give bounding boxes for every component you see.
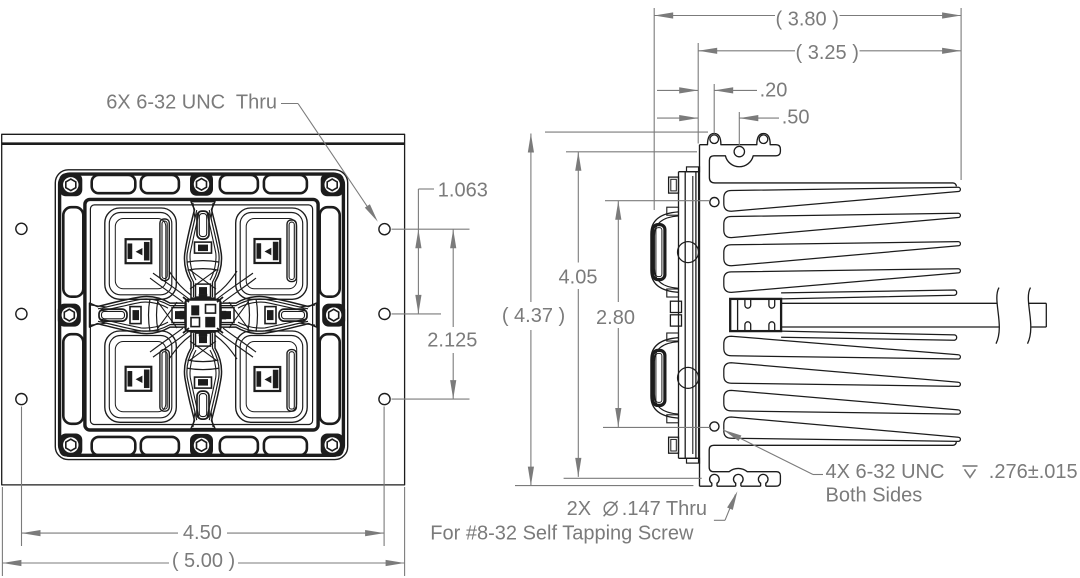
svg-text:6X 6-32 UNC Thru: 6X 6-32 UNC Thru (106, 91, 277, 113)
svg-text:( 4.37 ): ( 4.37 ) (502, 305, 565, 327)
svg-text:( 5.00 ): ( 5.00 ) (172, 550, 235, 572)
svg-text:( 3.80 ): ( 3.80 ) (776, 9, 839, 31)
svg-text:.20: .20 (760, 80, 788, 102)
svg-text:For #8-32 Self Tapping Screw: For #8-32 Self Tapping Screw (430, 523, 694, 545)
svg-text:4.05: 4.05 (559, 267, 598, 289)
svg-text:.276±.015: .276±.015 (989, 461, 1078, 483)
svg-text:.147 Thru: .147 Thru (622, 498, 707, 520)
svg-text:2.80: 2.80 (596, 307, 635, 329)
svg-text:2X: 2X (567, 498, 591, 520)
svg-text:1.063: 1.063 (438, 180, 488, 202)
svg-text:( 3.25 ): ( 3.25 ) (796, 42, 859, 64)
svg-text:.50: .50 (782, 107, 810, 129)
svg-text:2.125: 2.125 (427, 330, 477, 352)
svg-text:4.50: 4.50 (183, 522, 222, 544)
svg-text:Both Sides: Both Sides (826, 485, 923, 507)
svg-text:4X 6-32 UNC: 4X 6-32 UNC (826, 461, 945, 483)
